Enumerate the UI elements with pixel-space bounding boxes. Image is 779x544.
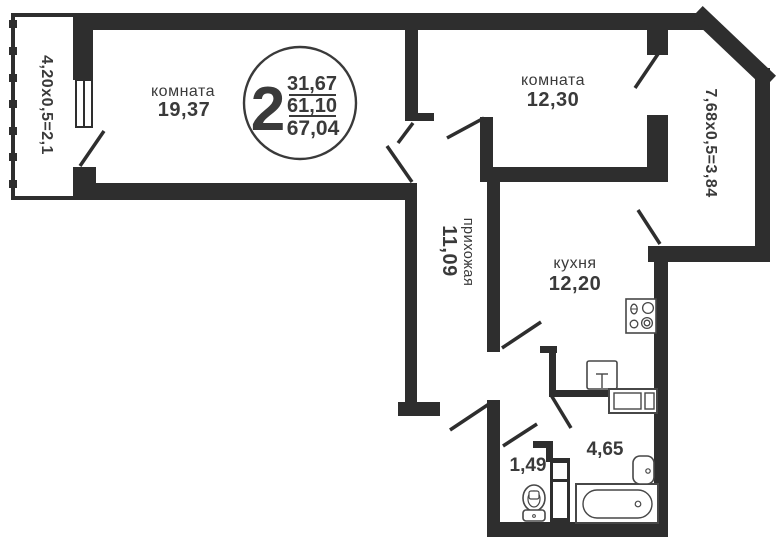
door-swing-balcony-left	[80, 131, 104, 166]
washing-machine-icon	[609, 389, 657, 413]
wall-hall-bottom	[398, 402, 440, 416]
wall-room1-door-block	[73, 167, 96, 200]
wall-balcony-right	[755, 68, 770, 262]
door-swing-wc	[503, 424, 537, 446]
door-swing-entrance	[450, 404, 489, 430]
rooms-count: 2	[251, 75, 285, 144]
living-area: 31,67	[287, 73, 337, 95]
wall-hall-stub	[418, 113, 434, 121]
wc-area: 1,49	[510, 455, 547, 476]
wall-kitchen-nook-v	[549, 346, 556, 397]
floor-plan: 2 31,67 61,10 67,04 комната 19,37 комнат…	[0, 0, 779, 544]
bathtub-icon	[576, 484, 658, 523]
wall-sanblock-left	[487, 400, 500, 537]
railing-bottom	[11, 196, 73, 200]
total-area: 67,04	[287, 117, 340, 140]
wall-top	[73, 13, 707, 30]
info-circle: 2 31,67 61,10 67,04	[244, 47, 356, 159]
wall-hall-left-top	[405, 25, 418, 121]
room2-area: 12,30	[527, 89, 580, 111]
door-swing-room2	[447, 118, 484, 138]
wall-room2-bottom	[480, 167, 668, 182]
wall-room2-left	[480, 117, 493, 172]
railing-top	[11, 13, 73, 17]
wall-balcony-right-bottom	[648, 246, 770, 262]
door-swing-room1-b	[387, 146, 412, 182]
balcony-left-label: 4,20х0,5=2,1	[38, 55, 55, 155]
door-swing-room1-a	[398, 123, 413, 143]
wall-hall-left-bottom	[405, 183, 417, 413]
door-swing-kitchen	[502, 322, 541, 348]
kitchen-sink-icon	[587, 361, 617, 389]
balcony-right-label: 7,68х0,5=3,84	[702, 88, 719, 197]
door-swing-bathroom	[551, 395, 571, 428]
vent-shaft	[550, 458, 570, 523]
washbasin-icon	[633, 456, 654, 484]
wall-room2-balcony-top	[647, 30, 668, 55]
stove-icon	[626, 299, 656, 333]
hallway-area: 11,09	[438, 225, 460, 276]
wall-room1-left-top	[73, 13, 93, 80]
kitchen-name: кухня	[553, 255, 596, 272]
room1-name: комната	[151, 83, 215, 100]
heated-area: 61,10	[287, 95, 337, 117]
kitchen-area: 12,20	[549, 273, 602, 295]
door-swing-kitchen-balcony	[638, 210, 660, 244]
toilet-icon	[523, 485, 545, 521]
wall-chamfer	[703, 18, 764, 76]
wall-hall-right	[487, 182, 500, 352]
room1-area: 19,37	[158, 99, 211, 121]
room2-name: комната	[521, 72, 585, 89]
bathroom-area: 4,65	[587, 439, 624, 460]
wall-room2-balcony-mid	[647, 115, 668, 177]
window-icon	[76, 80, 92, 127]
wall-room1-bottom	[93, 183, 417, 200]
wall-bottom	[487, 522, 668, 537]
door-swing-room2-balcony	[635, 54, 658, 88]
hallway-name: прихожая	[460, 218, 476, 287]
